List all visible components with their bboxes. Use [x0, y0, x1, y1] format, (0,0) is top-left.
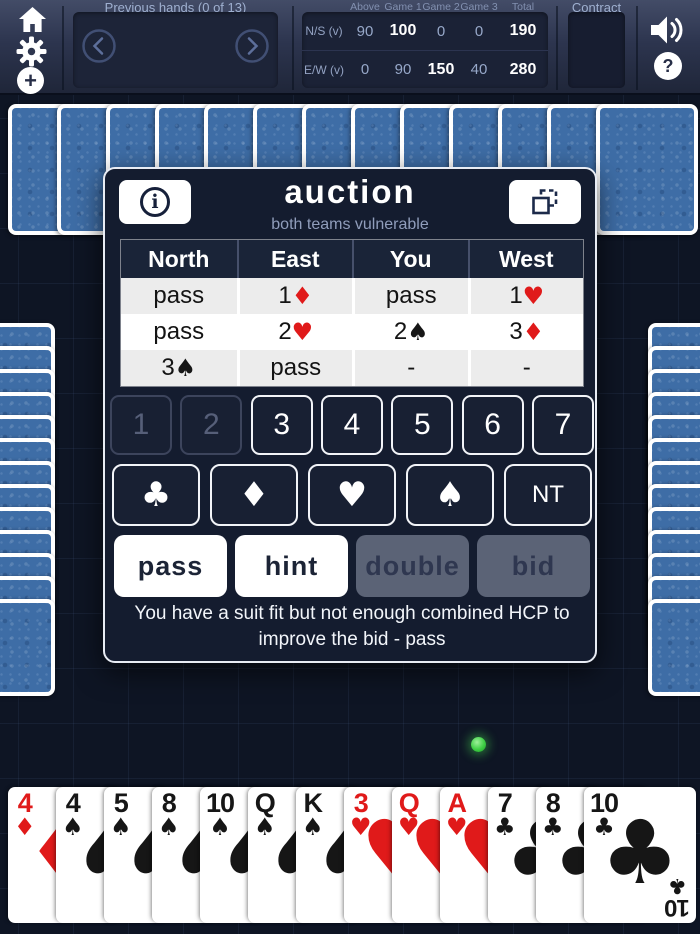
divider: [292, 6, 294, 90]
suit-button[interactable]: ♣: [112, 464, 200, 526]
suit-button[interactable]: ♠: [406, 464, 494, 526]
gear-icon: [16, 36, 47, 67]
previous-hands-panel: [73, 12, 278, 88]
score-row-label: N/S (v): [302, 24, 346, 38]
pass-button[interactable]: pass: [114, 535, 227, 597]
bid-rank: 3: [161, 354, 174, 382]
bid-suit: ♠: [407, 318, 429, 346]
score-column-headers: AboveGame 1Game 2Game 3Total: [302, 1, 548, 12]
level-button-5[interactable]: 5: [391, 395, 453, 455]
suit-icon: ♥: [337, 475, 367, 515]
card-back-pattern: [600, 108, 694, 231]
settings-button[interactable]: [16, 36, 47, 70]
expand-button[interactable]: [509, 180, 581, 224]
add-button[interactable]: +: [17, 67, 44, 94]
suit-icon: ♠: [435, 475, 465, 515]
home-icon: [18, 6, 47, 33]
score-cell: 0: [460, 23, 498, 40]
prev-hand-button[interactable]: [81, 28, 117, 64]
score-cell: 90: [346, 23, 384, 40]
chevron-right-icon: [234, 28, 270, 64]
score-row: N/S (v)9010000190: [302, 12, 548, 50]
seat-header: You: [352, 240, 468, 278]
bid-button[interactable]: bid: [477, 535, 590, 597]
bid-cell: 1♦: [237, 278, 353, 314]
divider: [556, 6, 558, 90]
seat-header: West: [468, 240, 584, 278]
suit-icon: ♣: [141, 475, 171, 515]
chevron-left-icon: [81, 28, 117, 64]
bid-cell: 2♥: [237, 314, 353, 350]
double-button[interactable]: double: [356, 535, 469, 597]
level-button-2[interactable]: 2: [180, 395, 242, 455]
score-cell: 150: [422, 61, 460, 79]
level-button-3[interactable]: 3: [251, 395, 313, 455]
hint-text: You have a suit fit but not enough combi…: [117, 601, 587, 652]
nt-label: NT: [532, 481, 564, 509]
bid-cell: -: [352, 350, 468, 386]
score-row: E/W (v)09015040280: [302, 50, 548, 88]
level-button-1[interactable]: 1: [110, 395, 172, 455]
bid-cell: pass: [121, 278, 237, 314]
bid-cell: pass: [237, 350, 353, 386]
home-button[interactable]: [18, 6, 47, 36]
bid-suit: ♦: [523, 318, 545, 346]
bid-cell: pass: [352, 278, 468, 314]
notrump-button[interactable]: NT: [504, 464, 592, 526]
card-corner-inverted: 10♣: [665, 876, 690, 919]
bid-rank: 2: [278, 318, 291, 346]
score-row-label: E/W (v): [302, 63, 346, 77]
level-buttons-row: 1234567: [110, 395, 594, 455]
score-cell: 0: [422, 23, 460, 40]
next-hand-button[interactable]: [234, 28, 270, 64]
card-back-pattern: [0, 603, 51, 692]
help-button[interactable]: ?: [654, 52, 682, 80]
card-back: [0, 599, 55, 696]
playing-card-10♣[interactable]: 10♣♣10♣: [584, 787, 696, 923]
hint-button[interactable]: hint: [235, 535, 348, 597]
divider: [636, 6, 638, 90]
question-icon: ?: [663, 56, 674, 77]
score-cell: 40: [460, 61, 498, 78]
suit-button[interactable]: ♦: [210, 464, 298, 526]
card-back-pattern: [652, 603, 700, 692]
auction-table: NorthEastYouWestpass1♦pass1♥pass2♥2♠3♦3♠…: [120, 239, 584, 387]
bid-cell: 2♠: [352, 314, 468, 350]
bid-suit: ♠: [175, 354, 197, 382]
speaker-icon: [649, 15, 686, 45]
bid-suit: ♥: [292, 318, 314, 346]
action-buttons-row: passhintdoublebid: [114, 535, 590, 597]
score-panel: N/S (v)9010000190E/W (v)09015040280: [302, 12, 548, 88]
seat-header: North: [121, 240, 237, 278]
score-cell: 0: [346, 61, 384, 78]
bid-cell: 3♦: [468, 314, 584, 350]
card-back: [648, 599, 700, 696]
bid-cell: pass: [121, 314, 237, 350]
bid-suit: ♥: [523, 282, 545, 310]
card-back: [596, 104, 698, 235]
expand-icon: [531, 188, 559, 216]
level-button-7[interactable]: 7: [532, 395, 594, 455]
bid-cell: -: [468, 350, 584, 386]
suit-buttons-row: ♣♦♥♠NT: [112, 464, 592, 526]
level-button-4[interactable]: 4: [321, 395, 383, 455]
level-button-6[interactable]: 6: [462, 395, 524, 455]
bid-rank: 1: [278, 282, 291, 310]
bid-suit: ♦: [292, 282, 314, 310]
player-hand: 4♦♦4♦4♠♠4♠5♠♠5♠8♠♠8♠10♠♠10♠Q♠♠Q♠K♠♠K♠3♥♥…: [0, 787, 700, 934]
score-cell: 100: [384, 22, 422, 40]
bid-rank: 3: [509, 318, 522, 346]
contract-box: [568, 12, 625, 88]
suit-button[interactable]: ♥: [308, 464, 396, 526]
bid-rank: 2: [394, 318, 407, 346]
card-rank: 10: [665, 895, 690, 919]
auction-dialog: i auction both teams vulnerable NorthEas…: [103, 167, 597, 663]
suit-icon: ♦: [239, 475, 269, 515]
score-cell: 90: [384, 61, 422, 78]
green-marker: [471, 737, 486, 752]
score-cell: 190: [498, 22, 548, 40]
divider: [62, 6, 64, 90]
bid-cell: 1♥: [468, 278, 584, 314]
score-cell: 280: [498, 61, 548, 79]
volume-button[interactable]: [649, 15, 686, 48]
bid-rank: 1: [509, 282, 522, 310]
card-suit: ♣: [665, 876, 690, 895]
plus-icon: +: [24, 68, 37, 94]
seat-header: East: [237, 240, 353, 278]
topbar: + Previous hands (0 of 13) AboveGame 1Ga…: [0, 0, 700, 95]
bid-cell: 3♠: [121, 350, 237, 386]
